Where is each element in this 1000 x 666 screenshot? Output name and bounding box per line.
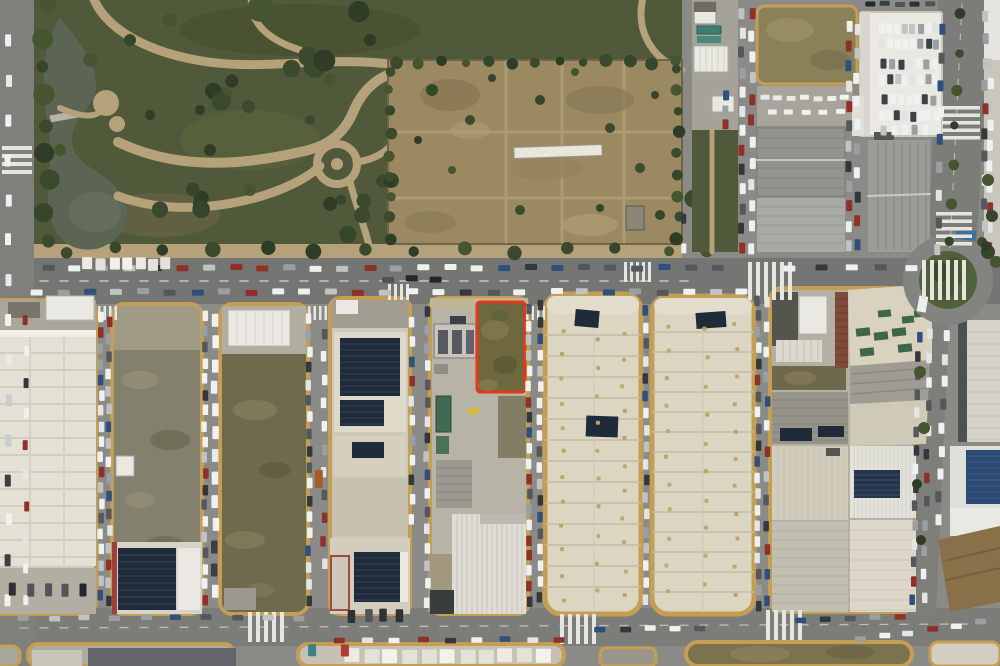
- parked-vehicle: [410, 376, 416, 387]
- parked-vehicle: [306, 429, 312, 440]
- parked-vehicle: [875, 264, 887, 270]
- parked-vehicle: [644, 475, 650, 486]
- tree: [671, 84, 682, 95]
- parked-vehicle: [981, 80, 987, 91]
- yellow-car: [468, 408, 479, 414]
- parked-vehicle: [527, 637, 538, 643]
- parked-vehicle: [432, 289, 444, 295]
- zebra-crossing: [532, 306, 535, 320]
- parked-vehicle: [211, 495, 218, 508]
- parked-vehicle: [764, 297, 770, 308]
- parked-vehicle: [915, 390, 921, 401]
- parked-vehicle: [410, 336, 416, 347]
- zebra-crossing: [774, 610, 778, 640]
- zebra-crossing: [280, 612, 284, 642]
- parked-vehicle: [644, 509, 650, 519]
- tree: [670, 232, 683, 245]
- parked-vehicle: [99, 499, 105, 510]
- roof-vent: [622, 540, 626, 544]
- parked-vehicle: [203, 265, 215, 271]
- roof-vent: [562, 599, 566, 603]
- zebra-crossing: [942, 136, 980, 140]
- white-tent: [440, 649, 455, 663]
- parked-vehicle: [23, 595, 28, 605]
- parked-vehicle: [176, 265, 188, 271]
- parked-vehicle: [537, 366, 543, 377]
- parked-vehicle: [98, 590, 104, 601]
- parked-vehicle: [738, 47, 744, 58]
- dealer-car: [909, 75, 915, 85]
- parked-vehicle: [603, 289, 615, 295]
- tree: [34, 143, 54, 163]
- parked-vehicle: [23, 470, 28, 480]
- roof-vent: [560, 574, 564, 578]
- solar-panel-array: [340, 338, 400, 396]
- tree: [205, 242, 221, 258]
- roof-vent: [666, 589, 670, 593]
- parked-vehicle: [938, 469, 944, 480]
- parked-vehicle: [513, 289, 525, 295]
- parked-vehicle: [552, 265, 564, 271]
- roof-vent: [704, 526, 708, 530]
- parked-vehicle: [854, 143, 860, 154]
- parked-vehicle: [783, 266, 795, 272]
- tree: [385, 105, 395, 115]
- parked-vehicle: [594, 627, 605, 633]
- right-block: [770, 284, 932, 612]
- parked-vehicle: [924, 449, 930, 460]
- tree: [955, 8, 966, 19]
- parked-vehicle: [846, 221, 852, 232]
- parked-vehicle: [107, 473, 113, 484]
- parked-vehicle: [283, 264, 295, 270]
- parked-vehicle: [763, 495, 769, 506]
- skylight: [874, 331, 889, 340]
- parked-vehicle: [756, 424, 762, 435]
- roof-vent: [704, 469, 708, 473]
- parked-vehicle: [846, 41, 852, 52]
- parked-vehicle: [846, 81, 852, 92]
- parked-vehicle: [981, 128, 987, 139]
- parked-vehicle: [307, 528, 313, 539]
- tree: [946, 198, 957, 209]
- parked-vehicle: [425, 470, 431, 481]
- roof-vent: [622, 358, 626, 362]
- tree: [571, 68, 579, 76]
- parked-vehicle: [201, 422, 207, 433]
- white-tent: [479, 650, 494, 664]
- roof-vent: [734, 430, 738, 434]
- parked-vehicle: [526, 321, 532, 332]
- white-tent: [402, 650, 417, 664]
- roof-vent: [562, 449, 566, 453]
- parked-vehicle: [645, 625, 656, 631]
- parked-vehicle: [471, 637, 482, 643]
- parked-vehicle: [306, 562, 312, 573]
- tree: [124, 34, 136, 46]
- parked-vehicle: [460, 290, 472, 296]
- parked-vehicle: [43, 265, 55, 271]
- parked-vehicle: [106, 491, 112, 502]
- parked-vehicle: [754, 553, 760, 564]
- parked-vehicle: [847, 21, 853, 32]
- tree: [212, 92, 231, 111]
- parked-vehicle: [740, 28, 746, 39]
- parked-vehicle: [98, 482, 104, 493]
- roof-vent: [595, 562, 599, 566]
- parked-vehicle: [926, 353, 932, 364]
- dealer-car: [930, 96, 936, 106]
- roof-vent: [703, 327, 707, 331]
- zebra-crossing: [798, 610, 802, 640]
- parked-vehicle: [24, 408, 29, 418]
- roof-vent: [560, 352, 564, 356]
- parked-vehicle: [6, 274, 12, 286]
- parked-vehicle: [201, 614, 212, 620]
- tree: [981, 241, 991, 251]
- tree: [39, 119, 53, 133]
- parked-vehicle: [425, 306, 431, 317]
- zebra-crossing: [936, 235, 972, 239]
- zebra-crossing: [922, 260, 926, 300]
- tree: [354, 207, 370, 223]
- parked-vehicle: [537, 415, 543, 426]
- parked-vehicle: [321, 398, 327, 409]
- dark-van: [396, 609, 404, 622]
- parked-vehicle: [754, 327, 760, 338]
- tree: [671, 56, 681, 66]
- parked-vehicle: [712, 265, 724, 271]
- parked-vehicle: [764, 322, 770, 333]
- tree: [261, 241, 275, 255]
- parked-vehicle: [926, 377, 932, 388]
- parked-vehicle: [526, 536, 532, 547]
- parked-vehicle: [869, 614, 880, 620]
- parked-vehicle: [756, 310, 762, 321]
- parked-vehicle: [988, 120, 994, 131]
- parked-vehicle: [325, 289, 337, 295]
- bottom-blocks: [0, 642, 1000, 666]
- parked-vehicle: [756, 342, 762, 353]
- parked-vehicle: [106, 438, 112, 449]
- zebra-crossing: [319, 306, 322, 320]
- solar-panel-array: [966, 450, 1000, 504]
- tree: [204, 144, 216, 156]
- left-blocks: [0, 296, 308, 614]
- parked-vehicle: [212, 426, 219, 439]
- parked-vehicle: [620, 627, 631, 633]
- parked-vehicle: [525, 264, 537, 270]
- parked-vehicle: [5, 554, 11, 566]
- parked-vehicle: [97, 452, 103, 463]
- parked-vehicle: [739, 106, 745, 117]
- parked-vehicle: [982, 11, 988, 22]
- parked-vehicle: [537, 398, 543, 409]
- parked-vehicle: [537, 544, 543, 555]
- parked-vehicle: [409, 357, 415, 368]
- parked-vehicle: [49, 616, 60, 622]
- parked-vehicle: [425, 397, 431, 408]
- parked-vehicle: [170, 615, 181, 621]
- parked-vehicle: [537, 446, 543, 457]
- roof-vent: [704, 499, 708, 503]
- parked-vehicle: [201, 499, 207, 510]
- white-tent: [365, 649, 380, 663]
- tree: [671, 148, 681, 158]
- parked-vehicle: [98, 405, 104, 416]
- skylight: [856, 327, 871, 336]
- roof-vent: [736, 537, 740, 541]
- parked-vehicle: [537, 512, 543, 523]
- tree: [40, 169, 60, 189]
- parked-vehicle: [538, 350, 544, 361]
- parked-vehicle: [538, 495, 544, 506]
- white-tent: [517, 648, 532, 662]
- parked-vehicle: [642, 305, 648, 316]
- parked-vehicle: [855, 119, 861, 130]
- parked-vehicle: [879, 633, 890, 639]
- parked-vehicle: [5, 594, 11, 606]
- parked-vehicle: [551, 288, 563, 294]
- parked-vehicle: [939, 53, 945, 64]
- parked-vehicle: [924, 496, 930, 507]
- parked-vehicle: [912, 500, 918, 511]
- roof-vent: [664, 455, 668, 459]
- dealer-car: [910, 39, 916, 49]
- parked-vehicle: [922, 520, 928, 531]
- parked-vehicle: [98, 375, 104, 386]
- roof-vent: [706, 355, 710, 359]
- parked-vehicle: [322, 559, 328, 570]
- parked-vehicle: [951, 624, 962, 630]
- parked-vehicle: [784, 110, 793, 115]
- zebra-crossing: [942, 114, 980, 118]
- tree: [83, 53, 97, 67]
- parked-vehicle: [263, 615, 274, 621]
- parked-vehicle: [756, 441, 762, 452]
- parked-vehicle: [760, 95, 769, 100]
- parked-vehicle: [909, 595, 915, 606]
- parked-vehicle: [846, 200, 852, 211]
- parked-vehicle: [846, 264, 858, 270]
- parked-vehicle: [749, 200, 755, 211]
- parked-vehicle: [643, 323, 649, 334]
- tree: [54, 144, 66, 156]
- dealer-car: [895, 74, 901, 84]
- parked-vehicle: [604, 265, 616, 271]
- dealer-car: [886, 24, 892, 34]
- tree: [233, 33, 247, 47]
- zebra-crossing: [930, 260, 934, 300]
- zebra-crossing: [954, 260, 958, 300]
- parked-vehicle: [981, 199, 987, 210]
- dealer-car: [918, 111, 924, 121]
- parked-vehicle: [738, 223, 744, 234]
- dealer-car: [909, 24, 915, 34]
- parked-vehicle: [935, 491, 941, 502]
- parked-vehicle: [754, 473, 760, 484]
- roof-vent: [733, 402, 737, 406]
- parked-vehicle: [18, 615, 29, 621]
- zebra-crossing: [314, 306, 317, 320]
- parked-vehicle: [763, 372, 769, 383]
- parked-vehicle: [895, 2, 905, 7]
- parked-vehicle: [802, 110, 811, 115]
- parked-vehicle: [936, 218, 942, 229]
- parked-vehicle: [795, 618, 806, 624]
- parked-vehicle: [922, 593, 928, 604]
- parked-vehicle: [643, 338, 649, 349]
- parked-vehicle: [854, 215, 860, 226]
- roof-vent: [705, 413, 709, 417]
- parked-vehicle: [527, 597, 533, 608]
- roof-vent: [667, 483, 671, 487]
- parked-vehicle: [24, 378, 29, 388]
- parked-vehicle: [390, 266, 402, 272]
- parked-vehicle: [212, 314, 219, 327]
- parked-vehicle: [526, 427, 532, 438]
- parked-vehicle: [58, 290, 70, 296]
- parked-vehicle: [740, 125, 746, 136]
- roof-vent: [704, 385, 708, 389]
- parked-vehicle: [5, 435, 11, 447]
- parked-vehicle: [306, 579, 312, 590]
- zebra-crossing: [2, 170, 32, 174]
- market-stall: [160, 257, 170, 269]
- tree: [33, 84, 54, 105]
- tree: [950, 121, 958, 129]
- tree: [242, 100, 255, 113]
- parked-vehicle: [352, 290, 364, 296]
- tree: [645, 58, 658, 71]
- parked-vehicle: [643, 356, 649, 367]
- parked-vehicle: [685, 265, 697, 271]
- dark-van: [9, 583, 16, 596]
- parked-vehicle: [855, 192, 861, 203]
- tree: [596, 204, 604, 212]
- parked-truck: [308, 644, 316, 656]
- tree: [507, 58, 519, 70]
- parked-vehicle: [322, 421, 328, 432]
- parked-vehicle: [322, 375, 328, 386]
- parked-vehicle: [527, 550, 533, 561]
- parked-vehicle: [915, 351, 921, 362]
- white-tent: [497, 648, 512, 662]
- parked-vehicle: [910, 2, 920, 7]
- parked-vehicle: [409, 475, 415, 486]
- parked-vehicle: [938, 107, 944, 118]
- roof-vent: [734, 512, 738, 516]
- parked-vehicle: [98, 360, 104, 371]
- dealer-car: [894, 110, 900, 120]
- parked-vehicle: [97, 344, 103, 355]
- parked-vehicle: [365, 265, 377, 271]
- parked-vehicle: [106, 596, 112, 607]
- parked-vehicle: [5, 115, 11, 127]
- parked-vehicle: [914, 445, 920, 456]
- parked-vehicle: [840, 95, 849, 100]
- parked-vehicle: [408, 396, 414, 407]
- parked-vehicle: [827, 96, 836, 101]
- parked-vehicle: [740, 87, 746, 98]
- tree: [949, 160, 960, 171]
- parked-vehicle: [498, 265, 510, 271]
- dealer-car: [924, 110, 930, 120]
- parked-vehicle: [527, 489, 533, 500]
- dealer-car: [906, 59, 912, 69]
- market-stall: [82, 257, 92, 269]
- parked-vehicle: [846, 101, 852, 112]
- parked-vehicle: [755, 536, 761, 547]
- parked-vehicle: [382, 277, 394, 283]
- parked-vehicle: [106, 404, 112, 415]
- parked-vehicle: [538, 334, 544, 345]
- parked-vehicle: [305, 329, 311, 340]
- roof-vent: [561, 426, 565, 430]
- parked-vehicle: [983, 103, 989, 114]
- parked-vehicle: [763, 347, 769, 358]
- tree: [624, 55, 637, 68]
- parked-vehicle: [379, 290, 391, 296]
- parked-vehicle: [307, 411, 313, 422]
- parked-vehicle: [749, 220, 755, 231]
- rust-roof-strip: [835, 292, 848, 368]
- tree: [955, 49, 964, 58]
- parked-vehicle: [537, 462, 543, 473]
- tree: [462, 59, 470, 67]
- vacant-dirt-lot: [757, 6, 857, 84]
- parked-vehicle: [853, 96, 859, 107]
- dark-van: [365, 609, 373, 622]
- parked-vehicle: [939, 446, 945, 457]
- parked-vehicle: [644, 577, 650, 588]
- parked-vehicle: [975, 619, 986, 625]
- parked-vehicle: [322, 490, 328, 501]
- parked-vehicle: [321, 351, 327, 362]
- tree: [348, 1, 369, 22]
- parked-vehicle: [537, 430, 543, 441]
- parked-vehicle: [845, 616, 856, 622]
- tree: [306, 244, 322, 260]
- tree: [672, 65, 681, 74]
- roof-vent: [562, 329, 566, 333]
- parked-vehicle: [6, 354, 12, 366]
- parked-vehicle: [106, 334, 112, 345]
- parked-vehicle: [5, 475, 11, 487]
- zebra-crossing: [962, 260, 966, 300]
- parked-vehicle: [526, 459, 532, 470]
- parked-vehicle: [755, 375, 761, 386]
- zebra-crossing: [648, 262, 651, 282]
- roof-vent: [735, 375, 739, 379]
- parked-vehicle: [748, 243, 754, 254]
- parked-vehicle: [488, 290, 500, 296]
- parked-vehicle: [927, 329, 933, 340]
- parked-vehicle: [106, 422, 112, 433]
- white-tent: [461, 650, 476, 664]
- tree: [145, 110, 155, 120]
- parked-vehicle: [740, 204, 746, 215]
- zebra-crossing: [748, 262, 752, 300]
- parked-vehicle: [410, 455, 416, 466]
- parked-vehicle: [336, 266, 348, 272]
- tree: [225, 74, 238, 87]
- zebra-crossing: [630, 262, 633, 282]
- zebra-crossing: [942, 106, 980, 110]
- parked-vehicle: [657, 290, 669, 296]
- roof-vent: [597, 504, 601, 508]
- parked-vehicle: [983, 58, 989, 69]
